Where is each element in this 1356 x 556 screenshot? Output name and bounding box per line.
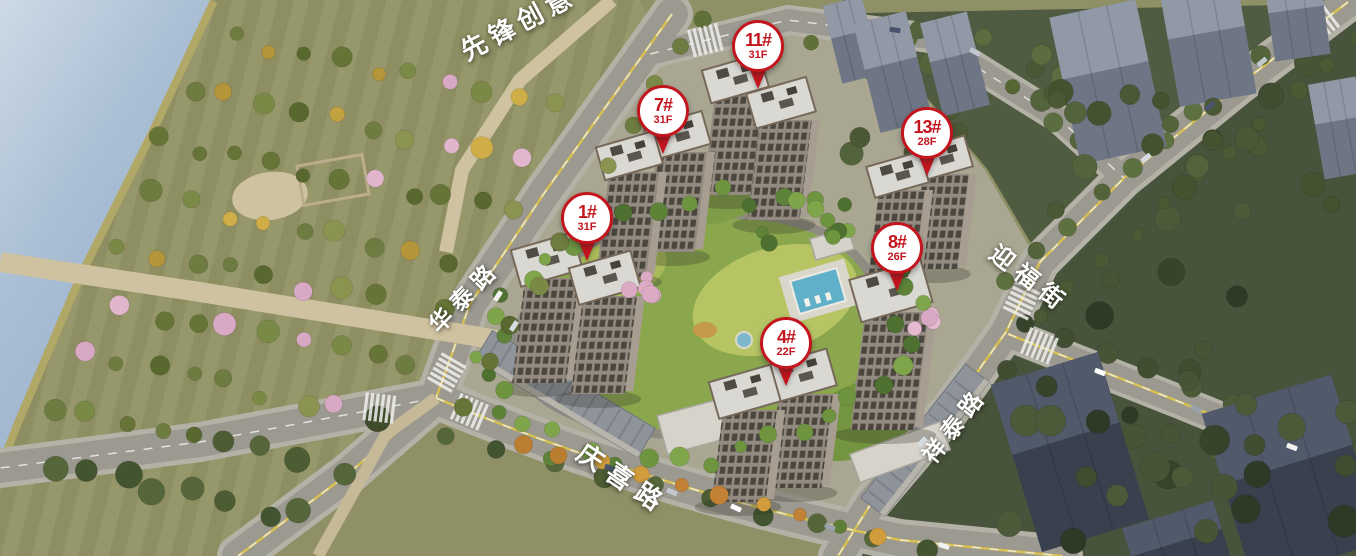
building-marker-8[interactable]: 8# 26F — [870, 222, 924, 291]
building-floors: 26F — [888, 251, 907, 264]
building-floors: 31F — [749, 49, 768, 62]
building-number: 4# — [777, 328, 795, 346]
building-number: 8# — [888, 233, 906, 251]
building-marker-13[interactable]: 13# 28F — [900, 107, 954, 176]
marker-pin-circle: 13# 28F — [901, 107, 953, 159]
building-marker-4[interactable]: 4# 22F — [759, 317, 813, 386]
building-markers: 1# 31F 4# 22F 7# 31F 8# 26F — [0, 0, 1356, 556]
building-floors: 22F — [777, 346, 796, 359]
building-marker-1[interactable]: 1# 31F — [560, 192, 614, 261]
building-floors: 28F — [918, 136, 937, 149]
building-number: 7# — [654, 96, 672, 114]
building-floors: 31F — [654, 114, 673, 127]
marker-pin-circle: 4# 22F — [760, 317, 812, 369]
building-floors: 31F — [578, 221, 597, 234]
marker-pin-circle: 7# 31F — [637, 85, 689, 137]
building-number: 1# — [578, 203, 596, 221]
marker-pin-circle: 1# 31F — [561, 192, 613, 244]
building-number: 13# — [913, 118, 940, 136]
building-number: 11# — [745, 31, 771, 49]
building-marker-7[interactable]: 7# 31F — [636, 85, 690, 154]
marker-pin-circle: 11# 31F — [732, 20, 784, 72]
marker-pin-circle: 8# 26F — [871, 222, 923, 274]
masterplan-aerial-view: 先锋创意 华泰路 迎福街 祥泰路 庆喜路 1# 31F 4# 22F 7# 31… — [0, 0, 1356, 556]
building-marker-11[interactable]: 11# 31F — [731, 20, 785, 89]
